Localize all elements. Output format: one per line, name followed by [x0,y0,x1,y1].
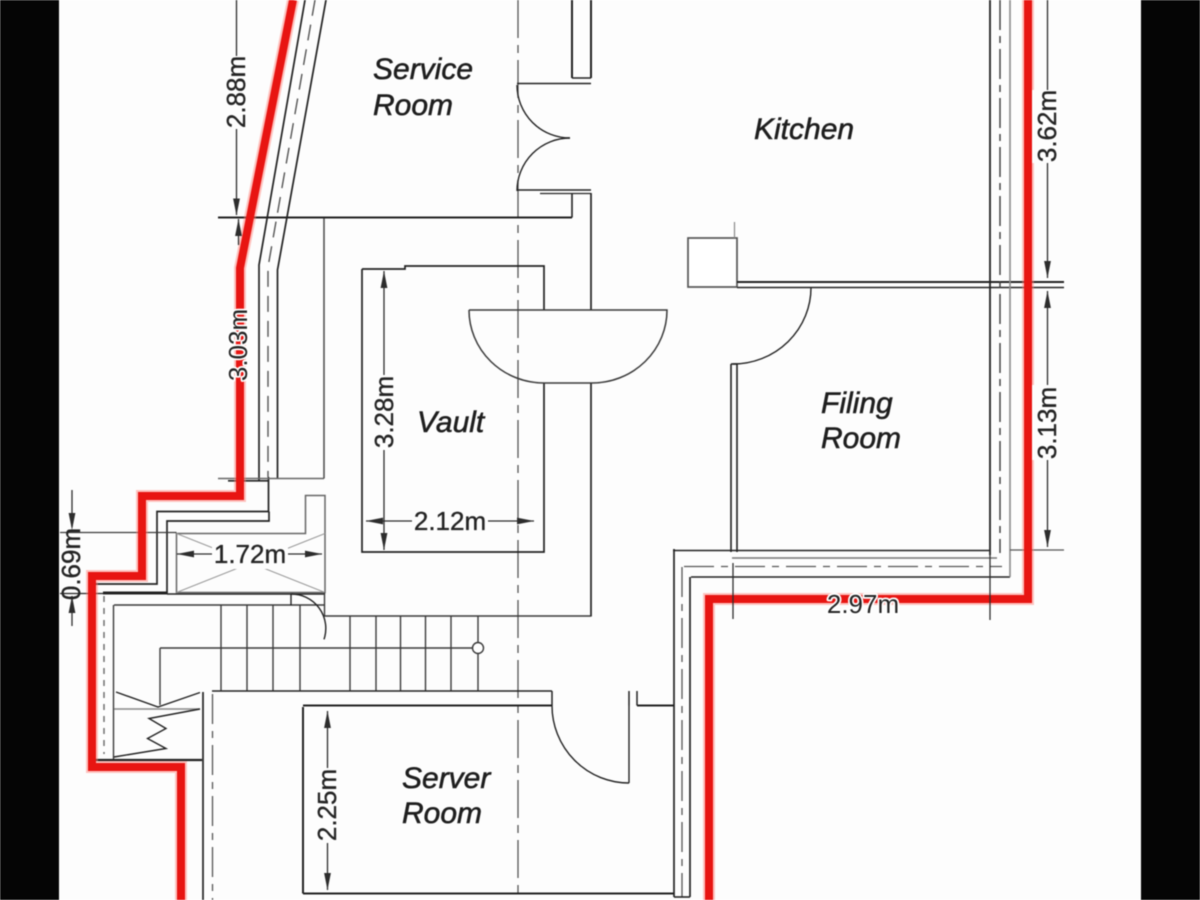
svg-text:2.97m: 2.97m [827,589,899,619]
svg-text:Room: Room [821,422,901,455]
svg-text:Kitchen: Kitchen [754,113,854,146]
svg-text:Room: Room [402,797,482,830]
svg-text:0.69m: 0.69m [56,528,86,600]
svg-text:3.28m: 3.28m [369,376,399,448]
svg-text:3.13m: 3.13m [1032,387,1062,459]
svg-text:Room: Room [373,89,453,122]
svg-text:2.25m: 2.25m [312,769,342,841]
svg-text:Vault: Vault [417,406,486,439]
svg-text:2.12m: 2.12m [414,506,486,536]
svg-text:3.03m: 3.03m [223,309,253,381]
svg-text:Server: Server [402,762,491,795]
svg-text:Service: Service [373,53,473,86]
svg-text:1.72m: 1.72m [214,539,286,569]
svg-text:3.62m: 3.62m [1032,90,1062,162]
svg-text:Filing: Filing [821,387,893,420]
svg-text:2.88m: 2.88m [221,56,251,128]
